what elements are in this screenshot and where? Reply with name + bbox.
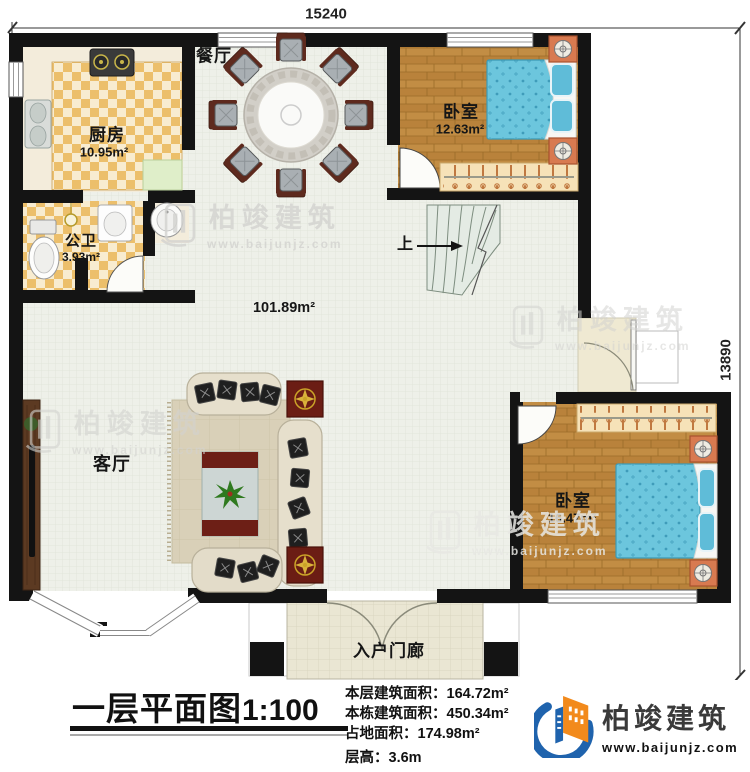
tv-cabinet bbox=[23, 400, 40, 590]
floor-plan-drawing bbox=[0, 0, 750, 682]
bedroom-top-window bbox=[447, 33, 533, 47]
building-stats: 本层建筑面积：164.72m² 本栋建筑面积：450.34m² 占地面积：174… bbox=[345, 684, 509, 768]
stat-footprint-area: 占地面积：174.98m² bbox=[345, 724, 509, 744]
stat-label: 本栋建筑面积： bbox=[345, 706, 447, 722]
stat-building-area: 本栋建筑面积：450.34m² bbox=[345, 704, 509, 724]
bedroom-right-bed bbox=[616, 464, 717, 558]
room-label-kitchen: 厨房 bbox=[89, 127, 125, 144]
bedroom-top-bed bbox=[487, 60, 576, 139]
title-underline-thick bbox=[70, 726, 348, 731]
stat-value: 164.72m² bbox=[447, 686, 509, 702]
stat-label: 占地面积： bbox=[345, 726, 418, 742]
kitchen-counter-board bbox=[143, 160, 182, 190]
bedroom-right-bottom-window bbox=[548, 590, 697, 603]
bedroom-top-closet bbox=[440, 163, 578, 191]
brand-block: 柏竣建筑 www.baijunjz.com bbox=[534, 694, 738, 758]
stat-floor-area: 本层建筑面积：164.72m² bbox=[345, 684, 509, 704]
stat-value: 450.34m² bbox=[447, 706, 509, 722]
footer-annotation: 一层平面图1:100 本层建筑面积：164.72m² 本栋建筑面积：450.34… bbox=[0, 680, 750, 772]
plan-scale: 1:100 bbox=[242, 694, 319, 727]
plan-title: 一层平面图 bbox=[72, 690, 242, 727]
hall-area-label: 101.89m² bbox=[253, 301, 315, 316]
room-label-bedroom-top: 卧室 bbox=[443, 104, 479, 121]
plan-title-block: 一层平面图1:100 bbox=[72, 682, 319, 730]
room-area-bedroom-right: 16.47m² bbox=[548, 512, 596, 525]
room-label-porch: 入户门廊 bbox=[353, 643, 425, 660]
hall-basin bbox=[151, 203, 183, 237]
stat-floor-height: 层高：3.6m bbox=[345, 748, 509, 768]
dimension-right-label: 13890 bbox=[719, 339, 734, 381]
title-underline-thin bbox=[70, 734, 348, 736]
floor-plan-page: 15240 13890 餐厅 厨房 10.95m² 公卫 3.93m² 卧室 1… bbox=[0, 0, 750, 772]
bay-windows bbox=[30, 591, 199, 639]
coffee-table bbox=[202, 452, 258, 536]
dining-table-set bbox=[209, 33, 373, 197]
room-label-bathroom: 公卫 bbox=[65, 234, 97, 249]
dimension-top-label: 15240 bbox=[305, 7, 347, 22]
room-area-bathroom: 3.93m² bbox=[62, 251, 100, 263]
stat-label: 本层建筑面积： bbox=[345, 686, 447, 702]
kitchen-sink bbox=[25, 100, 51, 148]
stat-value: 3.6m bbox=[389, 750, 422, 766]
stairs-up-label: 上 bbox=[397, 237, 413, 253]
brand-text: 柏竣建筑 www.baijunjz.com bbox=[602, 697, 738, 755]
room-area-kitchen: 10.95m² bbox=[80, 146, 128, 159]
room-area-bedroom-top: 12.63m² bbox=[436, 123, 484, 136]
brand-name: 柏竣建筑 bbox=[602, 697, 738, 737]
room-label-dining: 餐厅 bbox=[196, 48, 232, 65]
stat-value: 174.98m² bbox=[418, 726, 480, 742]
room-label-living: 客厅 bbox=[93, 455, 131, 473]
entry-vestibule-floor bbox=[578, 318, 678, 392]
kitchen-stove bbox=[90, 49, 134, 76]
kitchen-left-window bbox=[9, 62, 23, 97]
bathroom-sink bbox=[98, 205, 132, 241]
brand-logo-icon bbox=[534, 694, 596, 758]
stat-label: 层高： bbox=[345, 750, 389, 766]
toilet bbox=[29, 220, 59, 279]
room-label-bedroom-right: 卧室 bbox=[555, 493, 591, 510]
bedroom-right-closet bbox=[577, 404, 716, 432]
brand-url: www.baijunjz.com bbox=[602, 740, 738, 755]
